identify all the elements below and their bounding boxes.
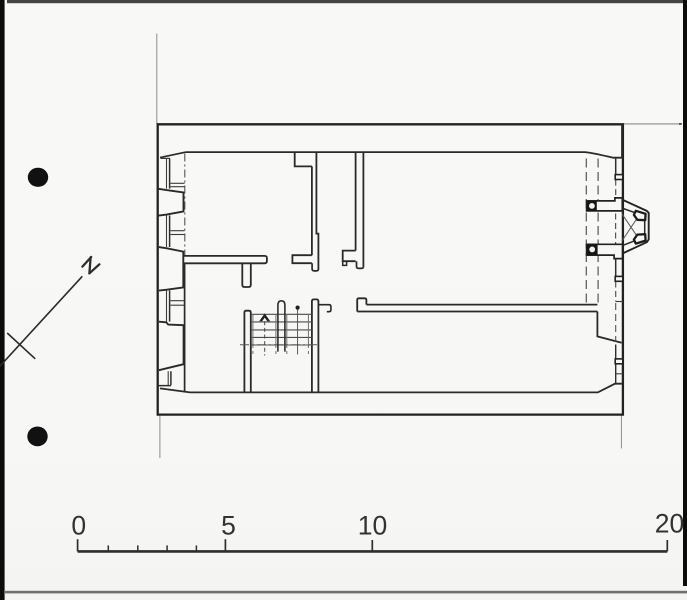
svg-text:0: 0 — [71, 511, 86, 541]
svg-text:20: 20 — [655, 509, 684, 539]
svg-text:10: 10 — [358, 511, 387, 541]
svg-text:5: 5 — [221, 511, 236, 541]
